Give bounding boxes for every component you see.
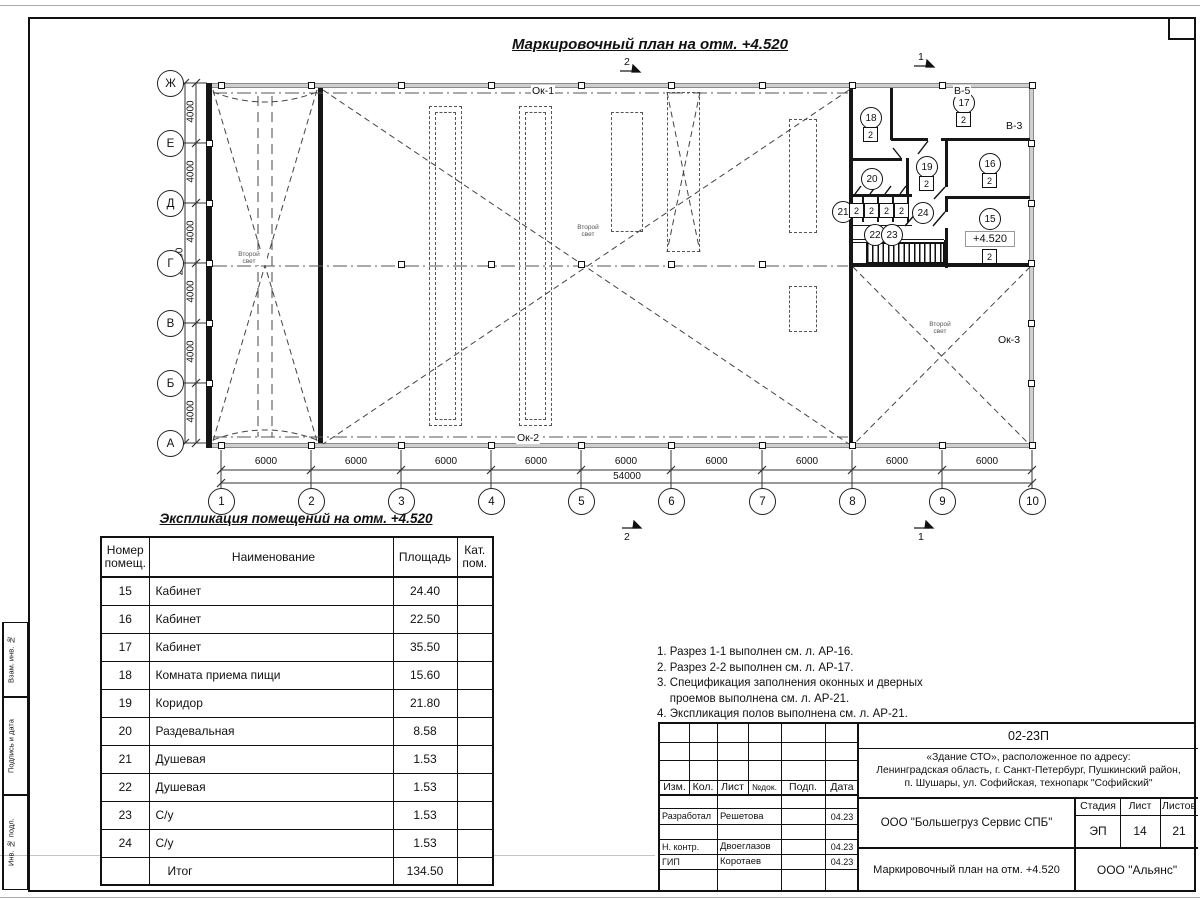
column-marker: [218, 442, 225, 449]
room-name: С/у: [149, 801, 393, 829]
dim-segment-h: 6000: [331, 456, 381, 467]
column-marker: [308, 82, 315, 89]
tb-col-ndok: №док.: [748, 780, 781, 794]
room-number: 17: [101, 633, 149, 661]
table-row: 23С/у1.53: [101, 801, 493, 829]
axis-bubble-10: 10: [1019, 488, 1046, 515]
room-type-mark: 2: [956, 112, 971, 127]
room-type-mark: 2: [982, 173, 997, 188]
room-name: Душевая: [149, 745, 393, 773]
axis-bubble-5: 5: [568, 488, 595, 515]
dim-segment-v: 4000: [186, 387, 197, 437]
tb-company: ООО "Большегруз Сервис СПБ": [859, 799, 1074, 847]
axis-bubble-Д: Д: [157, 190, 184, 217]
room-number: 20: [101, 717, 149, 745]
dim-segment-v: 4000: [186, 327, 197, 377]
column-marker: [578, 261, 585, 268]
column-marker: [488, 442, 495, 449]
tb-col-data: Дата: [825, 780, 859, 794]
column-marker: [206, 200, 213, 207]
section-mark-1-bottom: 1: [918, 531, 924, 543]
header-room-area: Площадь: [393, 537, 457, 577]
note-line: 3. Спецификация заполнения оконных и две…: [657, 676, 997, 692]
tb-role: Н. контр.: [662, 839, 717, 854]
level-mark: +4.520: [965, 231, 1015, 247]
column-marker: [398, 82, 405, 89]
axis-bubble-8: 8: [839, 488, 866, 515]
dim-segment-v: 4000: [186, 87, 197, 137]
notes-block: 1. Разрез 1-1 выполнен см. л. АР-16.2. Р…: [657, 645, 997, 723]
tb-sheet-label: Лист: [1120, 797, 1160, 815]
section-mark-2-top: 2: [624, 56, 630, 68]
floor-plan: 18 2 17 2 19 2 16 2 20 21 24 22 23 15 +4…: [0, 0, 1200, 560]
room-bubble-18: 18: [860, 107, 882, 129]
table-row: 24С/у1.53: [101, 829, 493, 857]
room-category: [457, 773, 493, 801]
column-marker: [1029, 82, 1036, 89]
room-number: 19: [101, 689, 149, 717]
table-header-row: Номер помещ. Наименование Площадь Кат. п…: [101, 537, 493, 577]
dim-segment-h: 6000: [421, 456, 471, 467]
tb-role: Разработал: [662, 808, 717, 824]
axis-bubble-7: 7: [749, 488, 776, 515]
title-block: Изм. Кол. Лист №док. Подп. Дата Разработ…: [658, 722, 1196, 892]
column-marker: [1029, 442, 1036, 449]
stall-door-mark: 2: [864, 203, 879, 218]
axis-bubble-Б: Б: [157, 370, 184, 397]
window-label-ok2: Ок-2: [516, 432, 540, 444]
dim-segment-v: 4000: [186, 267, 197, 317]
tb-org: ООО "Альянс": [1076, 849, 1198, 890]
room-area: 35.50: [393, 633, 457, 661]
column-marker: [849, 442, 856, 449]
table-row: 15Кабинет24.40: [101, 577, 493, 605]
dim-segment-h: 6000: [962, 456, 1012, 467]
dim-segment-h: 6000: [782, 456, 832, 467]
room-category: [457, 633, 493, 661]
table-row: 16Кабинет22.50: [101, 605, 493, 633]
room-number: 24: [101, 829, 149, 857]
room-name: Раздевальная: [149, 717, 393, 745]
room-name: Итог: [149, 857, 393, 885]
room-name: Кабинет: [149, 633, 393, 661]
room-area: 8.58: [393, 717, 457, 745]
tb-role-date: 04.23: [825, 840, 859, 854]
note-line: 1. Разрез 1-1 выполнен см. л. АР-16.: [657, 645, 997, 661]
room-number: 15: [101, 577, 149, 605]
room-bubble-24: 24: [912, 202, 934, 224]
tb-address-line: Ленинградская область, г. Санкт-Петербур…: [859, 764, 1198, 777]
room-bubble-20: 20: [861, 168, 883, 190]
tb-sheets-label: Листов: [1160, 797, 1198, 815]
dim-segment-h: 6000: [241, 456, 291, 467]
column-marker: [668, 442, 675, 449]
tb-role-name: Решетова: [720, 808, 780, 824]
dim-segment-h: 6000: [601, 456, 651, 467]
column-marker: [206, 140, 213, 147]
column-marker: [218, 82, 225, 89]
column-marker: [1028, 380, 1035, 387]
room-area: 15.60: [393, 661, 457, 689]
table-total-row: Итог134.50: [101, 857, 493, 885]
room-number: [101, 857, 149, 885]
room-number: 16: [101, 605, 149, 633]
second-light-label: Второй свет: [922, 321, 958, 335]
room-schedule-table: Номер помещ. Наименование Площадь Кат. п…: [100, 536, 494, 886]
column-marker: [206, 320, 213, 327]
column-marker: [398, 442, 405, 449]
table-row: 20Раздевальная8.58: [101, 717, 493, 745]
note-line: 2. Разрез 2-2 выполнен см. л. АР-17.: [657, 661, 997, 677]
dim-segment-h: 6000: [872, 456, 922, 467]
axis-bubble-Г: Г: [157, 250, 184, 277]
door-label-v3: В-3: [1005, 120, 1023, 132]
room-number: 22: [101, 773, 149, 801]
room-category: [457, 577, 493, 605]
tb-sheet-value: 14: [1120, 815, 1160, 847]
room-number: 23: [101, 801, 149, 829]
dim-segment-h: 6000: [511, 456, 561, 467]
dim-segment-v: 4000: [186, 147, 197, 197]
axis-bubble-А: А: [157, 430, 184, 457]
room-category: [457, 661, 493, 689]
column-marker: [488, 261, 495, 268]
tb-address-line: п. Шушары, ул. Софийская, технопарк "Соф…: [859, 777, 1198, 790]
room-area: 1.53: [393, 745, 457, 773]
axis-bubble-В: В: [157, 310, 184, 337]
window-label-ok3: Ок-3: [997, 334, 1021, 346]
note-line: проемов выполнена см. л. АР-21.: [657, 692, 997, 708]
room-category: [457, 605, 493, 633]
room-area: 21.80: [393, 689, 457, 717]
column-marker: [206, 260, 213, 267]
table-row: 18Комната приема пищи15.60: [101, 661, 493, 689]
tb-role-date: 04.23: [825, 809, 859, 824]
tb-role-name: Коротаев: [720, 854, 780, 869]
column-marker: [668, 261, 675, 268]
room-number: 21: [101, 745, 149, 773]
room-area: 1.53: [393, 773, 457, 801]
window-label-ok1: Ок-1: [531, 85, 555, 97]
room-name: Кабинет: [149, 577, 393, 605]
axis-bubble-Е: Е: [157, 130, 184, 157]
room-name: Коридор: [149, 689, 393, 717]
second-light-label: Второй свет: [570, 224, 606, 238]
room-category: [457, 801, 493, 829]
dim-total-horizontal: 54000: [597, 471, 657, 482]
column-marker: [759, 82, 766, 89]
tb-stage-label: Стадия: [1076, 797, 1120, 815]
room-area: 134.50: [393, 857, 457, 885]
tb-project-code: 02-23П: [859, 724, 1198, 748]
column-marker: [206, 380, 213, 387]
dim-segment-v: 4000: [186, 207, 197, 257]
room-area: 1.53: [393, 829, 457, 857]
column-marker: [939, 82, 946, 89]
section-mark-2-bottom: 2: [624, 531, 630, 543]
column-marker: [398, 261, 405, 268]
tb-stage-value: ЭП: [1076, 815, 1120, 847]
dim-segment-h: 6000: [692, 456, 742, 467]
room-category: [457, 857, 493, 885]
column-marker: [578, 82, 585, 89]
tb-col-kol: Кол.: [689, 780, 717, 794]
tb-sheets-value: 21: [1160, 815, 1198, 847]
room-category: [457, 829, 493, 857]
stall-door-mark: 2: [894, 203, 909, 218]
axis-bubble-9: 9: [929, 488, 956, 515]
column-marker: [759, 442, 766, 449]
schedule-title: Экспликация помещений на отм. +4.520: [100, 511, 492, 526]
section-mark-1-top: 1: [918, 51, 924, 63]
room-area: 22.50: [393, 605, 457, 633]
table-row: 17Кабинет35.50: [101, 633, 493, 661]
tb-col-izm: Изм.: [660, 780, 689, 794]
column-marker: [759, 261, 766, 268]
stall-door-mark: 2: [849, 203, 864, 218]
room-bubble-19: 19: [916, 156, 938, 178]
header-room-category: Кат. пом.: [457, 537, 493, 577]
column-marker: [1028, 260, 1035, 267]
axis-bubble-6: 6: [658, 488, 685, 515]
tb-address-line: «Здание СТО», расположенное по адресу:: [859, 751, 1198, 764]
column-marker: [308, 442, 315, 449]
room-type-mark: 2: [863, 127, 878, 142]
room-name: Душевая: [149, 773, 393, 801]
axis-bubble-Ж: Ж: [157, 70, 184, 97]
table-row: 19Коридор21.80: [101, 689, 493, 717]
door-label-v5: В-5: [953, 85, 971, 97]
tb-role-name: Двоеглазов: [720, 839, 780, 854]
column-marker: [1028, 140, 1035, 147]
header-room-number: Номер помещ.: [101, 537, 149, 577]
stall-door-mark: 2: [879, 203, 894, 218]
room-category: [457, 689, 493, 717]
room-type-mark: 2: [919, 176, 934, 191]
room-bubble-23: 23: [881, 224, 903, 246]
room-name: Комната приема пищи: [149, 661, 393, 689]
column-marker: [488, 82, 495, 89]
column-marker: [1028, 320, 1035, 327]
room-type-mark: 2: [982, 249, 997, 264]
note-line: 4. Экспликация полов выполнена см. л. АР…: [657, 707, 997, 723]
room-name: С/у: [149, 829, 393, 857]
tb-address: «Здание СТО», расположенное по адресу:Ле…: [859, 751, 1198, 797]
room-name: Кабинет: [149, 605, 393, 633]
table-row: 21Душевая1.53: [101, 745, 493, 773]
tb-role: ГИП: [662, 854, 717, 869]
tb-col-podp: Подп.: [781, 780, 825, 794]
room-area: 24.40: [393, 577, 457, 605]
tb-doc-title: Маркировочный план на отм. +4.520: [859, 849, 1074, 890]
room-category: [457, 745, 493, 773]
room-bubble-16: 16: [979, 153, 1001, 175]
column-marker: [939, 442, 946, 449]
room-area: 1.53: [393, 801, 457, 829]
drawing-sheet: Взам. инв. № Подпись и дата Инв. № подл.…: [0, 0, 1200, 900]
tb-role-date: 04.23: [825, 855, 859, 869]
room-number: 18: [101, 661, 149, 689]
table-row: 22Душевая1.53: [101, 773, 493, 801]
column-marker: [668, 82, 675, 89]
room-category: [457, 717, 493, 745]
header-room-name: Наименование: [149, 537, 393, 577]
room-bubble-15: 15: [979, 208, 1001, 230]
second-light-label: Второй свет: [231, 251, 267, 265]
column-marker: [578, 442, 585, 449]
tb-col-list: Лист: [717, 780, 748, 794]
column-marker: [849, 82, 856, 89]
column-marker: [1028, 200, 1035, 207]
